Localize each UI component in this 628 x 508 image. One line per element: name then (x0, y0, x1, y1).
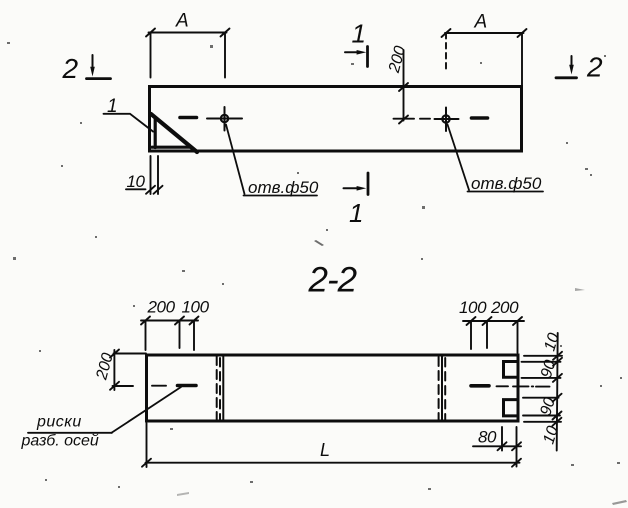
svg-text:2: 2 (586, 52, 603, 83)
svg-text:200: 200 (147, 298, 176, 317)
svg-text:80: 80 (478, 428, 497, 447)
svg-text:риски: риски (36, 414, 82, 431)
svg-text:L: L (320, 440, 330, 460)
svg-text:1: 1 (352, 19, 366, 49)
svg-text:2-2: 2-2 (308, 261, 357, 300)
svg-text:10: 10 (127, 172, 146, 191)
svg-text:разб. осей: разб. осей (21, 433, 99, 450)
svg-text:200: 200 (93, 351, 117, 382)
svg-text:200: 200 (490, 298, 519, 317)
svg-text:10: 10 (540, 424, 561, 446)
svg-text:А: А (175, 11, 189, 32)
svg-text:1: 1 (349, 198, 363, 228)
svg-text:отв.ф50: отв.ф50 (471, 174, 542, 193)
svg-text:200: 200 (386, 44, 410, 75)
svg-text:2: 2 (62, 53, 79, 84)
svg-text:100: 100 (182, 298, 210, 317)
svg-text:отв.ф50: отв.ф50 (248, 178, 319, 197)
svg-text:10: 10 (541, 331, 562, 353)
svg-text:А: А (474, 12, 488, 33)
svg-text:100: 100 (459, 298, 487, 317)
